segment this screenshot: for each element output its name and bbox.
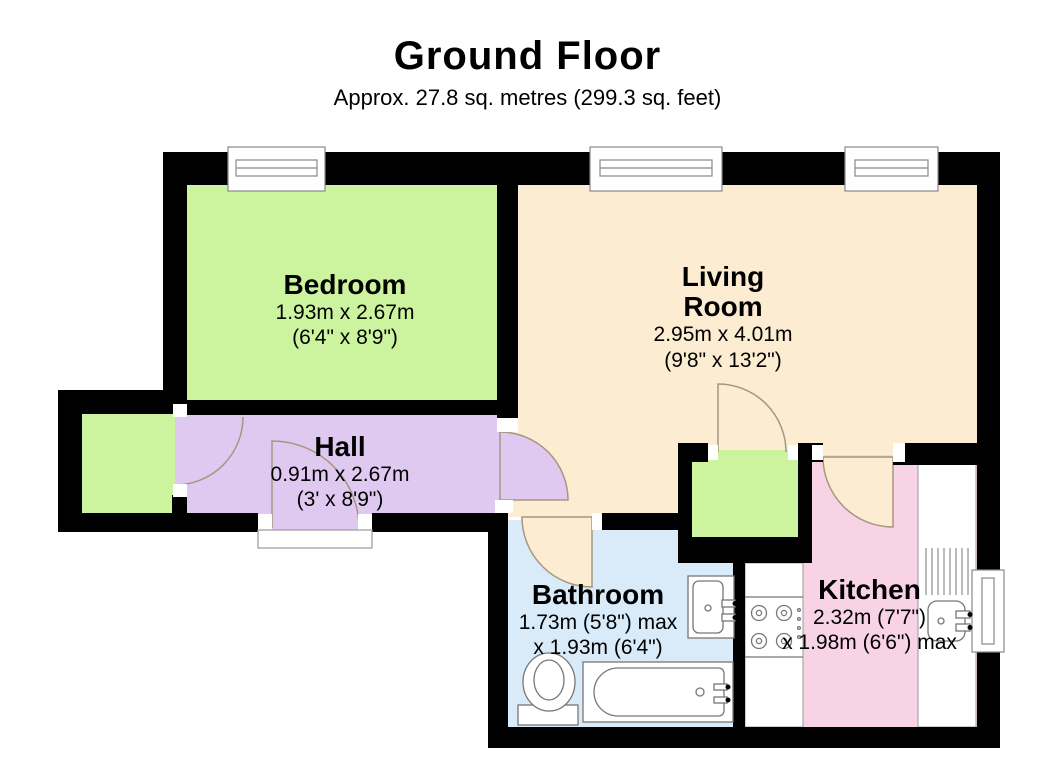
kitchen-counter-right [918,462,976,727]
window-top-1 [228,147,325,191]
closet-floor [688,450,802,545]
porch-floor [75,408,175,515]
threshold [708,445,718,460]
wall-bedroom-left [163,152,187,404]
threshold [358,514,372,530]
wall-bathroom-left [488,513,508,748]
wall-bottom-left [58,513,258,532]
threshold [173,484,187,497]
window-top-2 [590,147,722,191]
wall-porch-hall-stub [172,495,187,515]
wall-bedroom-living-divider [497,170,518,432]
page-title: Ground Floor [0,34,1055,79]
wall-right-upper [977,152,1000,572]
threshold [258,514,272,530]
threshold [173,404,187,417]
wall-outer-left [58,390,82,532]
wall-bathroom-top [598,513,692,530]
threshold [592,513,602,530]
hall-doorway-floor [258,508,372,530]
page-subtitle: Approx. 27.8 sq. metres (299.3 sq. feet) [0,85,1055,111]
threshold [495,500,513,513]
threshold [497,418,518,432]
threshold [893,443,905,462]
bathtub-fixture [583,662,733,722]
wall-hall-bottom-right [372,513,506,532]
threshold [788,445,798,460]
hall-floor [172,408,504,515]
wall-bottom [488,727,1000,748]
window-right [972,570,1004,652]
wall-closet-top-left [678,443,708,462]
floorplan [0,0,1055,767]
wall-bedroom-bottom [175,400,505,415]
bedroom-floor [175,170,510,410]
title-block: Ground Floor Approx. 27.8 sq. metres (29… [0,0,1055,111]
living-room-floor [510,170,988,455]
threshold [812,445,823,460]
entrance-step [258,530,372,548]
kitchen-counter-left [745,563,803,727]
window-top-3 [845,147,938,191]
washbasin-fixture [688,576,738,638]
wall-bathroom-kitchen-divider [733,540,745,730]
